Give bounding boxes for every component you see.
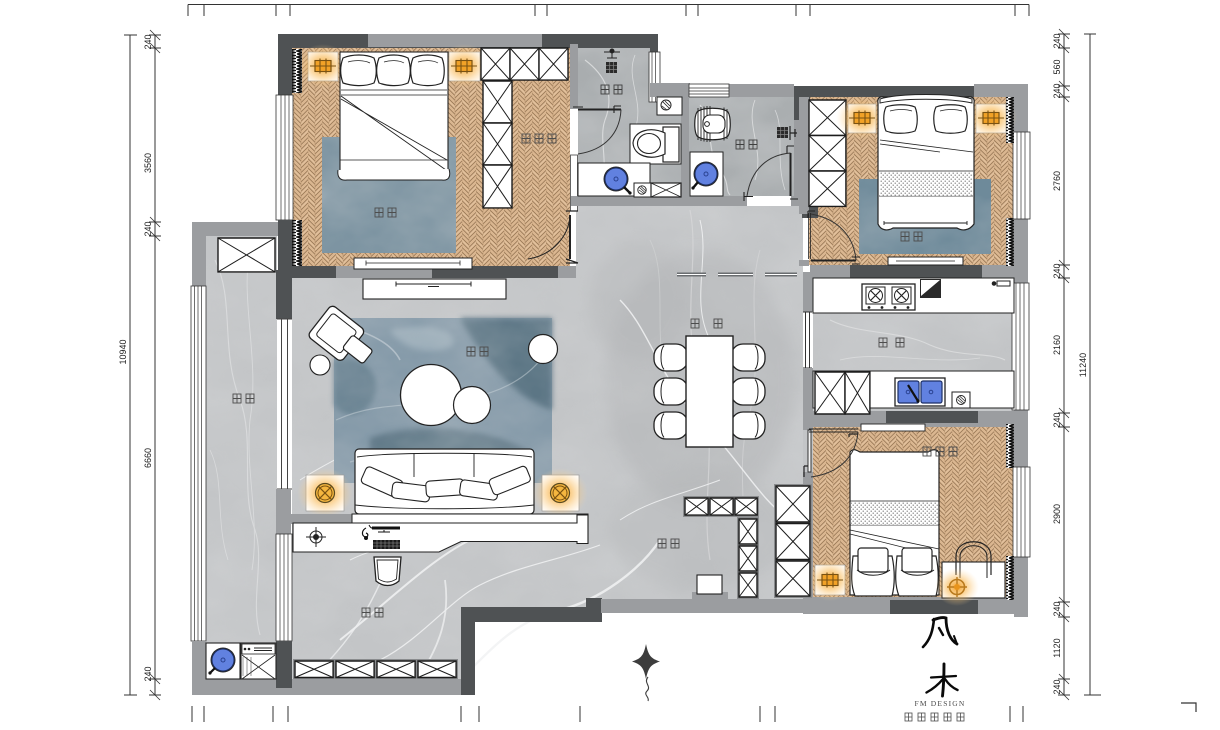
svg-text:560: 560 bbox=[1052, 59, 1062, 74]
svg-text:240: 240 bbox=[143, 34, 153, 49]
svg-text:6660: 6660 bbox=[143, 448, 153, 468]
svg-text:11240: 11240 bbox=[1078, 353, 1088, 377]
svg-text:240: 240 bbox=[143, 221, 153, 236]
svg-text:10940: 10940 bbox=[118, 339, 128, 364]
svg-text:2160: 2160 bbox=[1052, 335, 1062, 355]
svg-text:1120: 1120 bbox=[1052, 638, 1062, 657]
svg-text:FM DESIGN: FM DESIGN bbox=[914, 699, 965, 708]
svg-text:240: 240 bbox=[1052, 412, 1062, 427]
svg-text:3560: 3560 bbox=[143, 153, 153, 173]
svg-text:240: 240 bbox=[1052, 263, 1062, 278]
svg-text:240: 240 bbox=[1052, 83, 1062, 98]
svg-text:240: 240 bbox=[143, 666, 153, 681]
svg-text:240: 240 bbox=[1052, 679, 1062, 694]
svg-text:2760: 2760 bbox=[1052, 171, 1062, 191]
svg-text:240: 240 bbox=[1052, 601, 1062, 616]
svg-text:240: 240 bbox=[1052, 33, 1062, 48]
svg-text:2900: 2900 bbox=[1052, 504, 1062, 524]
